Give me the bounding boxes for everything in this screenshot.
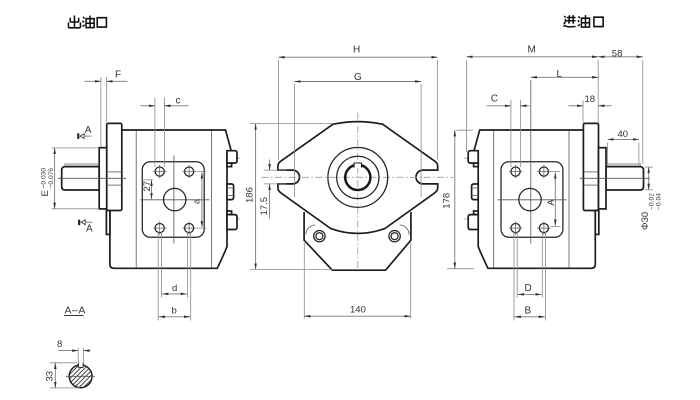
svg-text:17.5: 17.5: [259, 197, 270, 216]
svg-text:A: A: [85, 125, 92, 136]
svg-text:140: 140: [350, 305, 366, 316]
svg-text:d: d: [172, 283, 177, 294]
svg-text:D: D: [525, 283, 532, 294]
svg-text:178: 178: [441, 193, 452, 209]
svg-text:33: 33: [45, 371, 56, 382]
svg-text:F: F: [115, 70, 121, 81]
svg-text:b: b: [172, 306, 177, 317]
svg-text:L: L: [557, 69, 563, 80]
svg-text:H: H: [353, 45, 360, 56]
svg-text:40: 40: [618, 129, 629, 140]
svg-text:A–A: A–A: [65, 305, 86, 317]
svg-text:8: 8: [57, 339, 62, 350]
svg-text:Φ30: Φ30: [640, 212, 651, 230]
svg-text:−0.030: −0.030: [41, 168, 48, 189]
svg-text:c: c: [176, 96, 181, 107]
svg-text:C: C: [491, 94, 498, 105]
svg-text:27: 27: [142, 181, 153, 192]
svg-text:A: A: [546, 199, 557, 206]
svg-text:B: B: [525, 306, 532, 317]
svg-text:a: a: [192, 198, 203, 204]
svg-text:−0.02: −0.02: [648, 193, 655, 210]
svg-text:58: 58: [612, 48, 623, 59]
svg-text:M: M: [528, 45, 536, 56]
svg-text:−0.04: −0.04: [655, 193, 662, 210]
svg-text:E: E: [40, 190, 51, 196]
svg-text:−0.076: −0.076: [48, 168, 55, 189]
svg-text:G: G: [354, 72, 362, 83]
svg-text:18: 18: [585, 94, 596, 105]
svg-text:A: A: [86, 224, 93, 235]
svg-text:186: 186: [244, 187, 255, 203]
